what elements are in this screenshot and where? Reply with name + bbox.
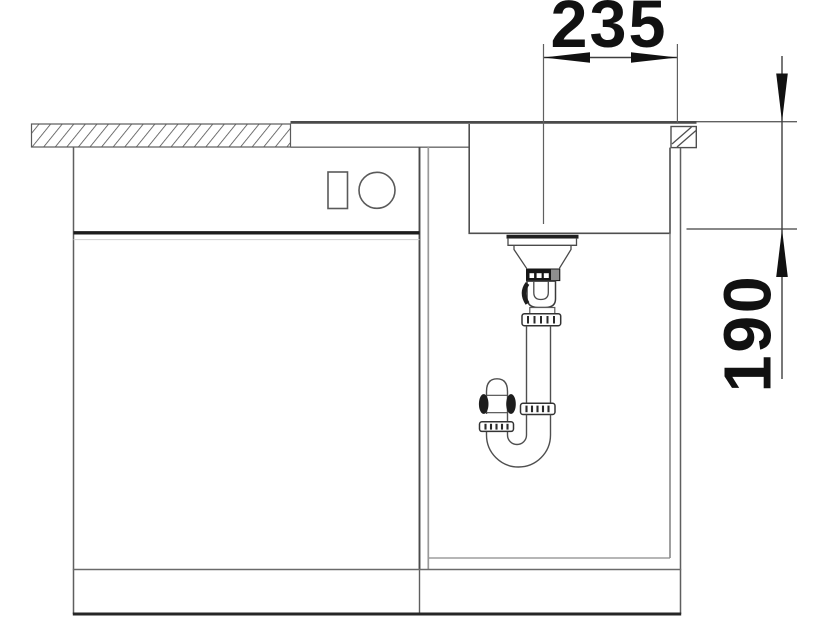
svg-text:190: 190 bbox=[712, 274, 786, 393]
svg-text:235: 235 bbox=[551, 0, 668, 62]
